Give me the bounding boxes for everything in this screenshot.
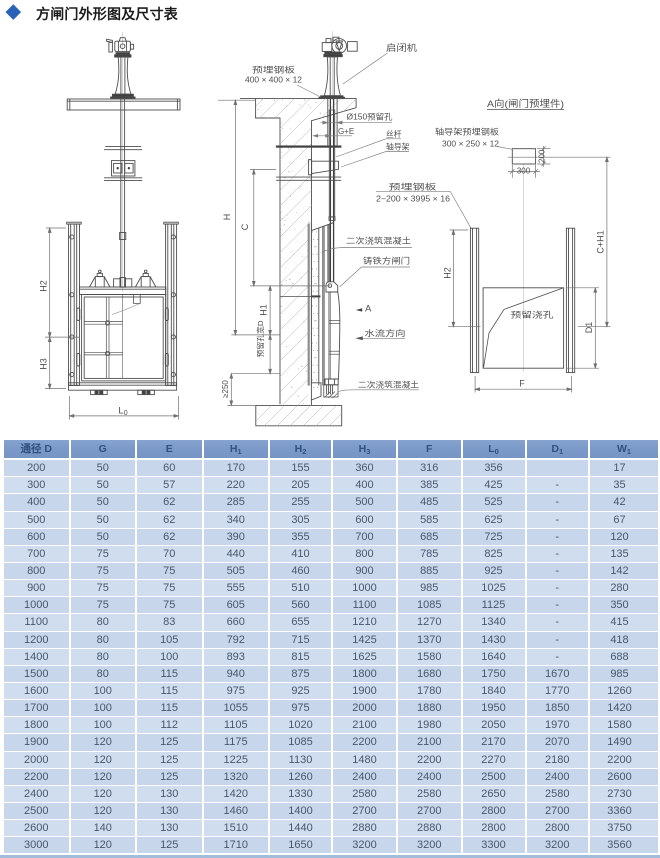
svg-text:二次浇筑混凝土: 二次浇筑混凝土 xyxy=(346,236,411,246)
svg-text:水流方向: 水流方向 xyxy=(365,328,406,338)
svg-text:预留孔宽D: 预留孔宽D xyxy=(255,320,265,358)
svg-text:H: H xyxy=(222,214,232,221)
svg-text:2−200 × 3995 × 16: 2−200 × 3995 × 16 xyxy=(376,194,451,203)
svg-text:预留浇孔: 预留浇孔 xyxy=(511,309,554,319)
svg-text:200: 200 xyxy=(538,149,547,163)
svg-text:G+E: G+E xyxy=(338,127,354,136)
svg-text:预埋钢板: 预埋钢板 xyxy=(252,65,295,75)
svg-text:≥250: ≥250 xyxy=(221,380,230,398)
svg-text:D1: D1 xyxy=(584,322,594,334)
svg-text:H2: H2 xyxy=(442,267,452,279)
svg-text:L0: L0 xyxy=(118,406,127,418)
svg-text:启闭机: 启闭机 xyxy=(386,42,417,53)
svg-text:A: A xyxy=(365,304,372,315)
svg-text:F: F xyxy=(519,378,525,388)
svg-text:预埋钢板: 预埋钢板 xyxy=(389,182,437,192)
svg-text:300 × 250 × 12: 300 × 250 × 12 xyxy=(442,139,500,148)
svg-text:H3: H3 xyxy=(39,358,49,370)
svg-text:H2: H2 xyxy=(39,280,49,292)
svg-text:二次浇筑混凝土: 二次浇筑混凝土 xyxy=(358,379,419,389)
svg-text:丝杆: 丝杆 xyxy=(386,129,402,139)
svg-text:轴导架: 轴导架 xyxy=(386,141,410,151)
svg-text:300: 300 xyxy=(517,167,531,176)
svg-text:轴导架预埋钢板: 轴导架预埋钢板 xyxy=(435,126,499,136)
svg-text:H1: H1 xyxy=(259,304,269,316)
svg-text:400 × 400 × 12: 400 × 400 × 12 xyxy=(245,76,303,85)
svg-text:C+H1: C+H1 xyxy=(596,230,606,253)
svg-text:C: C xyxy=(240,223,250,230)
svg-text:A向(闸门预埋件): A向(闸门预埋件) xyxy=(487,98,564,110)
svg-text:Ø150预留孔: Ø150预留孔 xyxy=(347,112,393,122)
svg-text:铸铁方闸门: 铸铁方闸门 xyxy=(363,255,410,265)
